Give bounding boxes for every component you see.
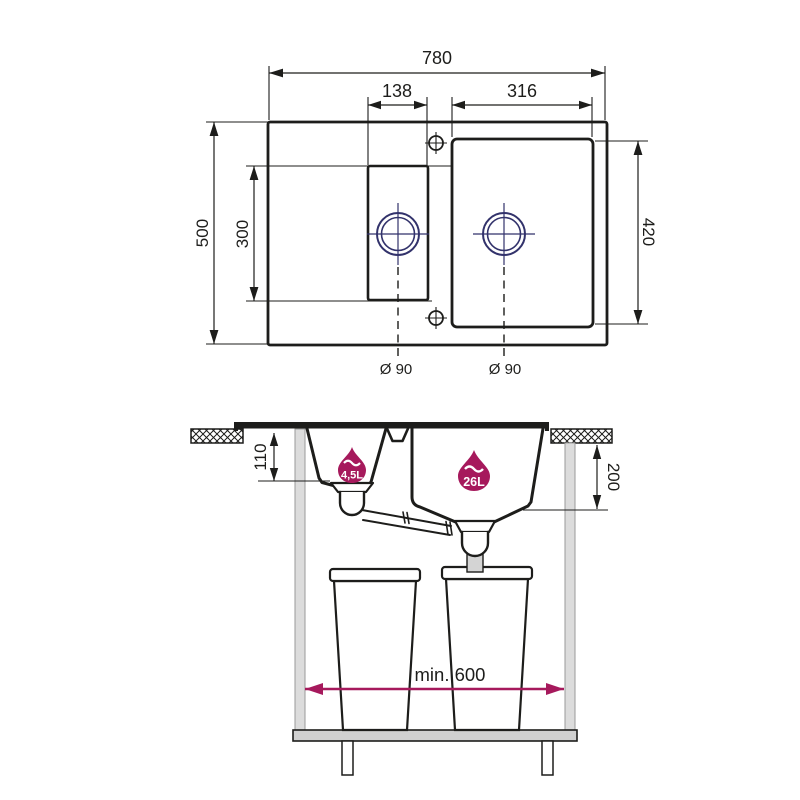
dim-label-small-bowl-height: 110 [251,443,270,470]
bin-body [446,579,528,730]
small-drain-trap [340,492,364,515]
large-drain-diameter-label: Ø 90 [489,361,522,378]
countertop-left [191,429,243,443]
cabinet-right-wall [565,443,575,730]
sink-rim-lip-left [234,422,238,431]
small-bowl-capacity-label: 4,5L [341,470,363,482]
cabinet-leg-left [342,741,353,775]
dim-label-large-bowl-height: 200 [604,463,623,491]
sink-technical-drawing-page: Ø 90 Ø 90 780 138 316 [0,0,800,800]
waste-bin-left [330,569,420,730]
dim-label-overall-depth: 500 [193,219,212,247]
bin-lid [442,567,532,579]
dim-label-large-bowl-width: 316 [507,81,537,101]
small-drain-funnel [331,483,373,492]
large-bowl-capacity-label: 26L [463,475,485,489]
countertop-right [551,429,612,443]
large-drain-trap [462,532,488,556]
dim-label-small-bowl-depth: 300 [233,220,252,248]
waste-bin-right [442,567,532,730]
sink-rim [234,422,549,429]
cabinet-leg-right [542,741,553,775]
small-drain-diameter-label: Ø 90 [380,361,413,378]
bin-body [334,581,416,730]
dim-label-small-bowl-width: 138 [382,81,412,101]
large-bowl [452,139,593,327]
large-drain-funnel [455,521,495,532]
bin-lid [330,569,420,581]
cabinet-bottom [293,730,577,741]
dim-label-large-bowl-depth: 420 [639,218,658,246]
dim-label-min-cabinet-width: min. 600 [415,664,486,685]
sink-technical-drawing: Ø 90 Ø 90 780 138 316 [0,0,800,800]
sink-rim-lip-right [545,422,549,431]
dim-label-overall-width: 780 [422,48,452,68]
cabinet-left-wall [295,429,305,730]
